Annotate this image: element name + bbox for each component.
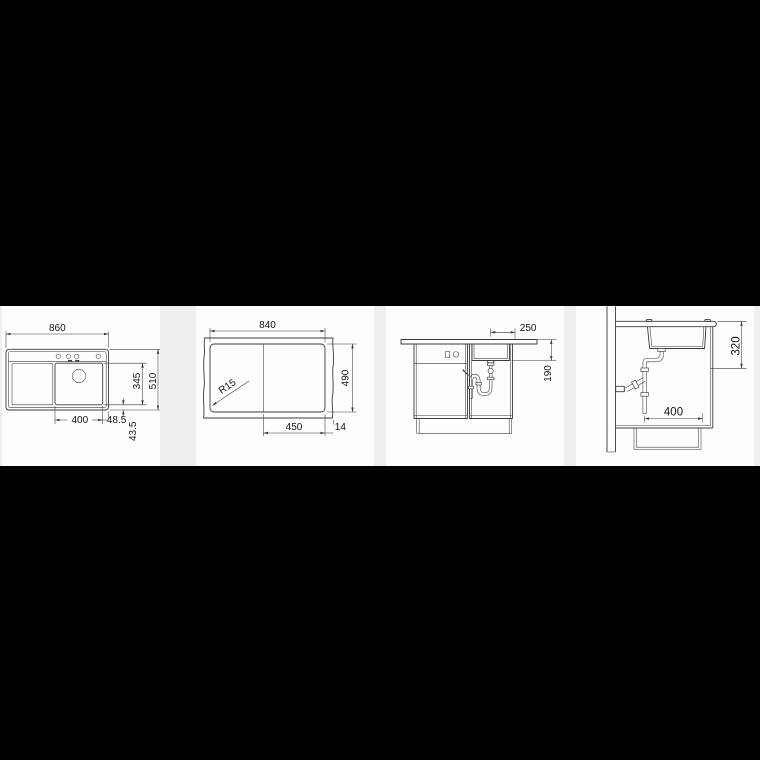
dim-edge-gap: 14 xyxy=(335,422,347,433)
tap-hole xyxy=(56,354,60,358)
dim-bowl-depth: 345 xyxy=(132,372,143,389)
dim-right-section: 450 xyxy=(286,422,303,433)
dimensions: 860 345 510 400 48.5 xyxy=(6,323,160,441)
dim-corner-radius: R15 xyxy=(217,377,239,397)
plinth xyxy=(634,428,701,450)
left-cabinet xyxy=(414,344,468,419)
dim-bowl-offset-right: 48.5 xyxy=(107,415,127,426)
dimensions: 320 400 xyxy=(645,321,747,422)
dim-depth-below-worktop: 190 xyxy=(543,365,554,382)
tap-hole xyxy=(96,354,100,358)
panel-side-view: 320 400 xyxy=(576,306,754,466)
dim-depth-below-worktop: 320 xyxy=(731,336,743,355)
tap-hole xyxy=(66,354,70,358)
wall xyxy=(607,307,616,453)
dim-bowl-offset-front: 43.5 xyxy=(128,421,139,441)
panel-cutout-view: 840 490 R15 450 14 xyxy=(196,306,374,466)
dim-overall-depth: 510 xyxy=(148,372,159,389)
tap-hole xyxy=(75,354,79,358)
worktop-slab xyxy=(401,340,537,345)
drain-pipes xyxy=(616,349,666,414)
dim-bowl-width: 400 xyxy=(71,415,88,426)
sink-outline xyxy=(6,349,109,410)
drain-hole xyxy=(72,369,85,382)
worktop-outline xyxy=(203,338,333,418)
cutout-outline xyxy=(210,344,325,412)
worktop-and-bowl xyxy=(616,319,717,348)
dimensions: 250 190 xyxy=(491,323,557,382)
bowl-section xyxy=(648,327,706,349)
cabinet-outline xyxy=(401,340,537,419)
cabinet-outline xyxy=(616,327,713,450)
sink-cabinet xyxy=(470,344,513,419)
front-view-drawing: 250 190 xyxy=(386,306,564,466)
dim-overall-width: 860 xyxy=(49,323,66,334)
top-view-drawing: 860 345 510 400 48.5 xyxy=(2,306,160,466)
plinth xyxy=(417,419,512,434)
side-view-drawing: 320 400 xyxy=(576,306,754,466)
diagram-strip: 860 345 510 400 48.5 xyxy=(0,306,760,466)
dim-drain-distance: 400 xyxy=(664,407,683,419)
cutout-drawing: 840 490 R15 450 14 xyxy=(196,306,374,466)
dim-cutout-depth: 490 xyxy=(341,369,352,386)
panel-front-view: 250 190 xyxy=(386,306,564,466)
drainboard xyxy=(12,364,53,405)
dim-cutout-width: 840 xyxy=(259,320,276,331)
dim-drain-to-edge: 250 xyxy=(520,323,537,334)
panel-top-view: 860 345 510 400 48.5 xyxy=(2,306,160,466)
dimensions: 840 490 R15 450 14 xyxy=(210,320,357,436)
bowl-section xyxy=(472,344,510,361)
screenshot-root: 860 345 510 400 48.5 xyxy=(0,0,760,760)
